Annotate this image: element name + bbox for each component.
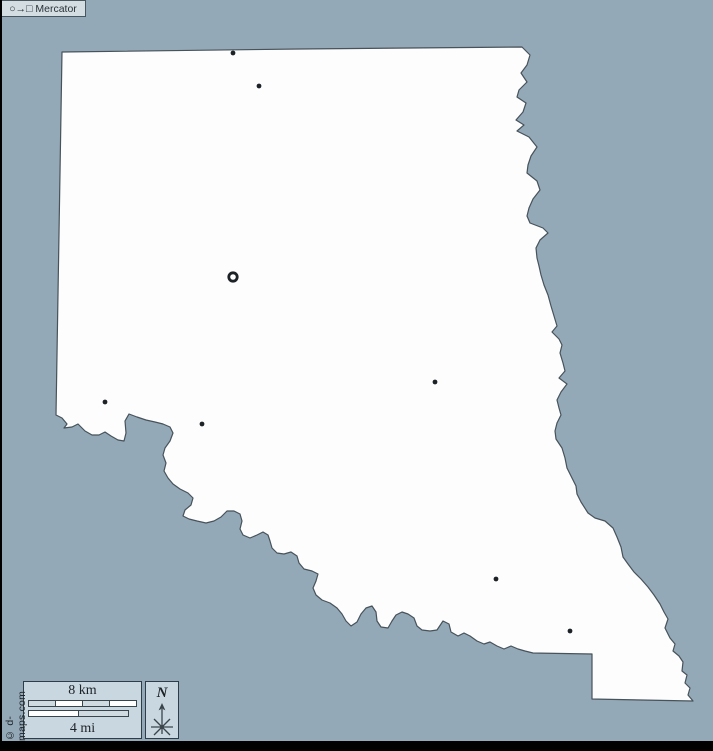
city-dot <box>103 400 108 405</box>
scale-bar-segment <box>29 711 79 716</box>
frame-left-edge <box>0 0 2 751</box>
scale-bar-segment <box>110 701 136 706</box>
compass-north-arrow-icon <box>149 702 175 738</box>
county-outline-map <box>0 0 713 751</box>
map-background: 8 km 4 mi N ○→□ Mercator © d-maps.com <box>0 0 713 751</box>
city-dot <box>433 380 438 385</box>
city-dot <box>231 51 236 56</box>
scale-km-label: 8 km <box>24 682 141 699</box>
mi-scale-bar <box>28 710 129 717</box>
north-box: N <box>145 681 179 739</box>
scale-bar-segment <box>29 701 56 706</box>
map-outline <box>56 47 693 701</box>
scale-bar-segment <box>56 701 83 706</box>
city-dot <box>568 629 573 634</box>
county-seat-marker <box>229 273 237 281</box>
scale-bar-segment <box>83 701 110 706</box>
km-scale-bar <box>28 700 137 707</box>
north-label: N <box>157 684 168 702</box>
city-dot <box>257 84 262 89</box>
scale-bar-segment <box>79 711 128 716</box>
frame-bottom-edge <box>0 741 713 751</box>
scale-mi-label: 4 mi <box>24 720 141 737</box>
city-dot <box>200 422 205 427</box>
copyright-text: © d-maps.com <box>4 667 18 741</box>
city-dot <box>494 577 499 582</box>
scale-box: 8 km 4 mi <box>23 681 142 739</box>
